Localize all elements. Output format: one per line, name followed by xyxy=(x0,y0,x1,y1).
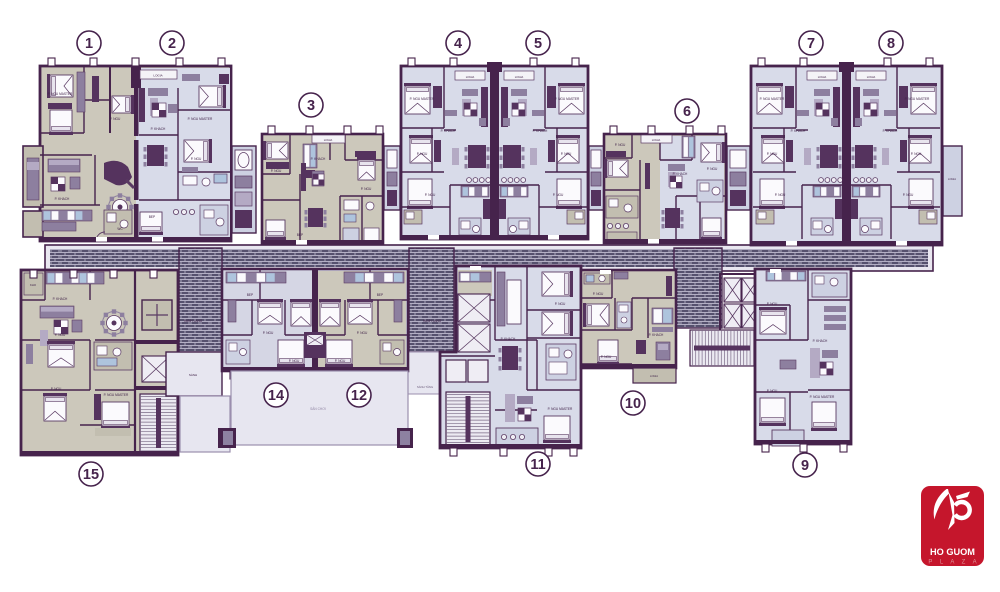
svg-text:P. NGU: P. NGU xyxy=(767,389,778,393)
svg-text:HO GUOM: HO GUOM xyxy=(930,547,975,557)
svg-text:P. NGU: P. NGU xyxy=(775,193,786,197)
svg-text:LOGIA: LOGIA xyxy=(324,138,333,142)
svg-text:5: 5 xyxy=(534,36,542,52)
svg-text:P. NGU: P. NGU xyxy=(707,167,718,171)
svg-text:P. NGU MASTER: P. NGU MASTER xyxy=(760,97,785,101)
svg-text:HANH LANG: HANH LANG xyxy=(423,319,442,323)
svg-text:P. KHACH: P. KHACH xyxy=(791,129,806,133)
svg-text:P. NGU: P. NGU xyxy=(289,359,300,363)
svg-text:P. NGU: P. NGU xyxy=(561,152,572,156)
svg-text:6: 6 xyxy=(683,104,691,120)
svg-text:P. KHACH: P. KHACH xyxy=(311,157,326,161)
svg-text:10: 10 xyxy=(625,396,641,412)
svg-text:P. KHACH: P. KHACH xyxy=(55,197,70,201)
svg-text:P. NGU: P. NGU xyxy=(335,359,346,363)
svg-text:P. NGU MASTER: P. NGU MASTER xyxy=(810,395,835,399)
svg-text:LOGIA: LOGIA xyxy=(650,374,658,378)
svg-text:P. NGU: P. NGU xyxy=(767,152,778,156)
svg-text:P. NGU: P. NGU xyxy=(767,302,778,306)
svg-text:LOGIA: LOGIA xyxy=(867,75,876,79)
svg-text:P. NGU MASTER: P. NGU MASTER xyxy=(548,407,573,411)
svg-text:11: 11 xyxy=(530,457,545,473)
svg-text:P. KHACH: P. KHACH xyxy=(53,297,68,301)
svg-text:P. NGU: P. NGU xyxy=(555,302,566,306)
svg-text:LOGIA: LOGIA xyxy=(153,74,162,78)
svg-text:P. NGU: P. NGU xyxy=(553,193,564,197)
svg-text:BEP: BEP xyxy=(247,293,253,297)
svg-text:P. NGU: P. NGU xyxy=(51,387,62,391)
svg-text:P. NGU: P. NGU xyxy=(271,169,282,173)
svg-text:P. KHACH: P. KHACH xyxy=(673,172,688,176)
svg-text:P. NGU: P. NGU xyxy=(903,193,914,197)
svg-text:P. NGU MASTER: P. NGU MASTER xyxy=(104,393,129,397)
svg-text:P. NGU: P. NGU xyxy=(615,143,626,147)
svg-text:LOGIA: LOGIA xyxy=(818,75,827,79)
svg-text:P. NGU: P. NGU xyxy=(55,333,66,337)
svg-text:KHO: KHO xyxy=(30,283,37,287)
svg-text:14: 14 xyxy=(268,388,284,404)
svg-text:LOGIA: LOGIA xyxy=(466,75,475,79)
svg-text:P. NGU MASTER: P. NGU MASTER xyxy=(48,92,73,96)
svg-text:P. NGU: P. NGU xyxy=(593,292,604,296)
svg-text:P. NGU: P. NGU xyxy=(361,187,372,191)
svg-text:7: 7 xyxy=(807,36,815,52)
svg-text:P. NGU MASTER: P. NGU MASTER xyxy=(410,97,435,101)
svg-text:P. KHACH: P. KHACH xyxy=(533,129,548,133)
svg-text:LOGIA: LOGIA xyxy=(948,177,956,181)
svg-text:BEP: BEP xyxy=(297,233,303,237)
svg-text:P. NGU MASTER: P. NGU MASTER xyxy=(555,97,580,101)
svg-text:P. NGU: P. NGU xyxy=(263,331,274,335)
svg-text:P. NGU: P. NGU xyxy=(911,152,922,156)
svg-text:P. KHACH: P. KHACH xyxy=(883,129,898,133)
svg-text:P. KHACH: P. KHACH xyxy=(151,127,166,131)
svg-text:15: 15 xyxy=(83,467,99,483)
svg-text:P. NGU: P. NGU xyxy=(110,117,121,121)
svg-text:LOGIA: LOGIA xyxy=(652,138,661,142)
svg-text:P. NGU: P. NGU xyxy=(425,193,436,197)
svg-text:P. NGU MASTER: P. NGU MASTER xyxy=(905,97,930,101)
svg-text:9: 9 xyxy=(801,458,809,474)
svg-text:SẢNH: SẢNH xyxy=(189,372,197,377)
svg-text:P. NGU: P. NGU xyxy=(357,331,368,335)
svg-text:HANH LANG: HANH LANG xyxy=(184,319,203,323)
svg-text:SÂN CHƠI: SÂN CHƠI xyxy=(310,407,326,411)
svg-text:3: 3 xyxy=(307,98,315,114)
svg-text:P. NGU: P. NGU xyxy=(417,152,428,156)
svg-text:P. NGU MASTER: P. NGU MASTER xyxy=(188,117,213,121)
svg-text:P. KHACH: P. KHACH xyxy=(649,333,664,337)
svg-text:2: 2 xyxy=(168,36,176,52)
svg-text:8: 8 xyxy=(887,36,895,52)
svg-text:SẢNH TẦNG: SẢNH TẦNG xyxy=(417,384,433,389)
svg-text:BEP: BEP xyxy=(377,293,383,297)
svg-text:P L A Z A: P L A Z A xyxy=(928,560,979,566)
svg-text:P. KHACH: P. KHACH xyxy=(441,129,456,133)
svg-text:4: 4 xyxy=(454,36,462,52)
svg-text:P. KHACH: P. KHACH xyxy=(813,339,828,343)
svg-text:P. NGU: P. NGU xyxy=(601,355,612,359)
svg-text:BEP: BEP xyxy=(149,215,155,219)
svg-text:WC: WC xyxy=(117,227,123,231)
svg-text:P. NGU: P. NGU xyxy=(191,157,202,161)
svg-text:1: 1 xyxy=(85,36,93,52)
svg-text:LOGIA: LOGIA xyxy=(515,75,524,79)
svg-text:P. KHACH: P. KHACH xyxy=(501,337,516,341)
svg-text:12: 12 xyxy=(351,388,367,404)
